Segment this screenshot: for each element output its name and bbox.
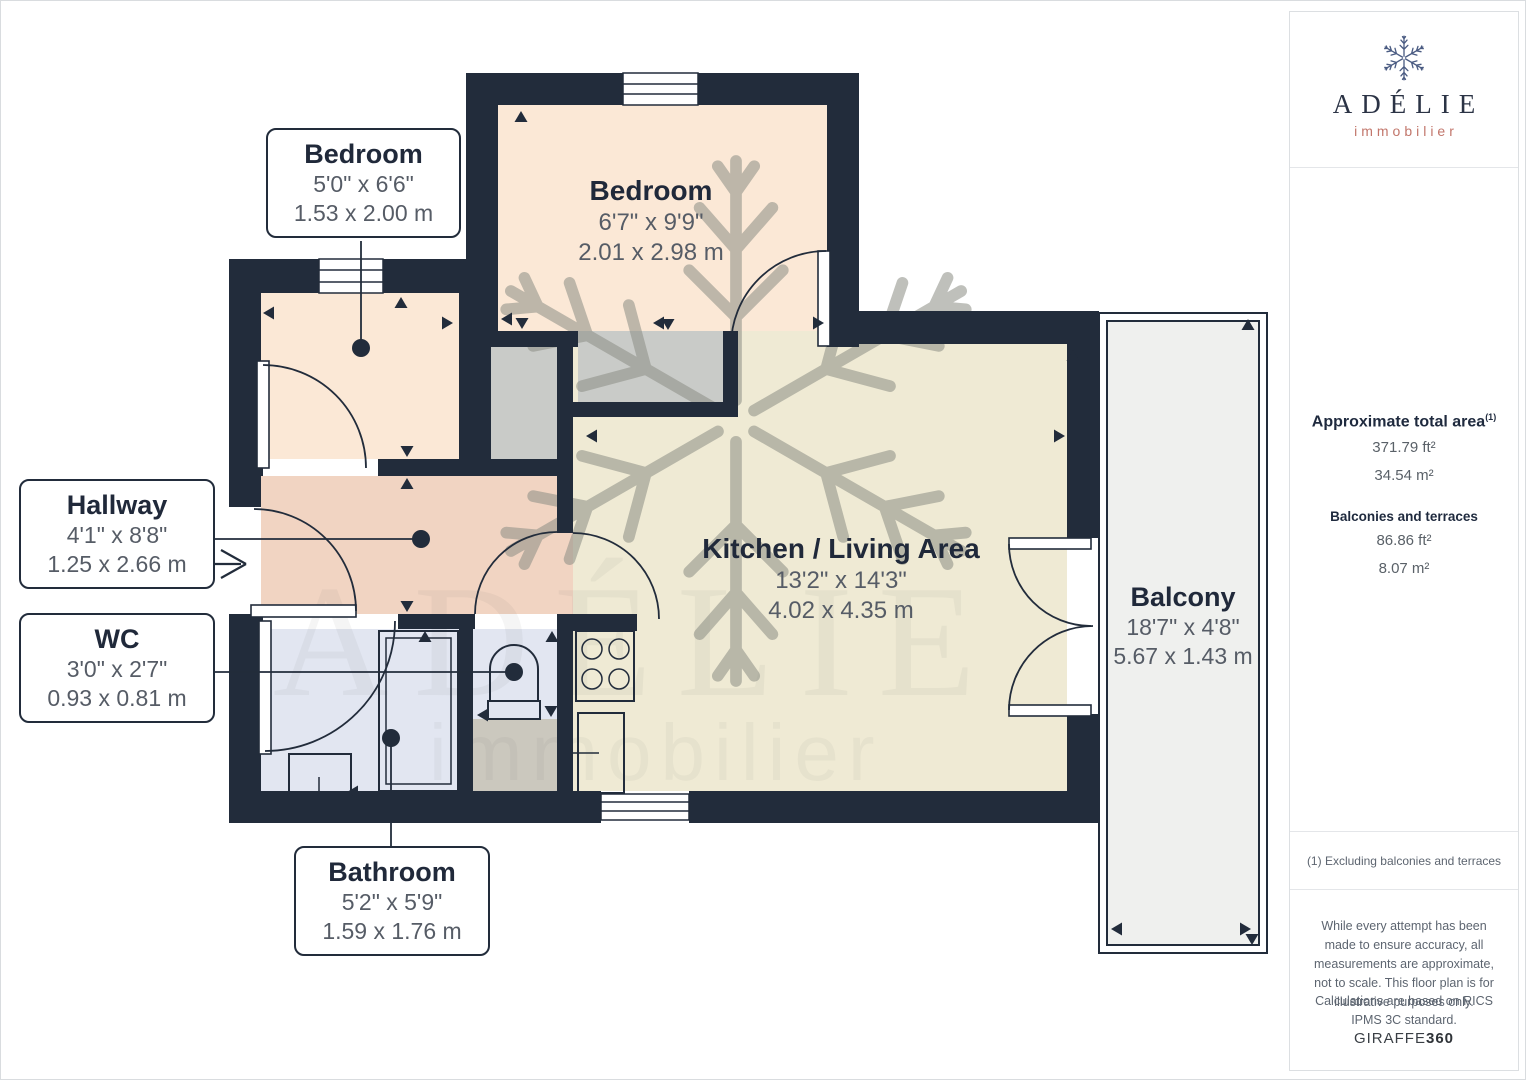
room-name: Bedroom	[481, 173, 821, 208]
room-name: WC	[27, 623, 207, 655]
room-name: Balcony	[1095, 581, 1271, 613]
closet-shaft	[491, 347, 557, 459]
bathroom-floor	[261, 629, 459, 791]
disclaimer-standard: Calculations are based on RICS IPMS 3C s…	[1304, 992, 1504, 1030]
room-size-imperial: 4'1" x 8'8"	[27, 521, 207, 550]
floorplan-page: ADÉLIE immobilier	[0, 0, 1526, 1080]
info-sidebar: ADÉLIE immobilier Approximate total area…	[1289, 11, 1519, 1071]
brand-subtitle: immobilier	[1290, 123, 1518, 139]
balcony-area-m: 8.07 m²	[1290, 558, 1518, 580]
room-label-bedroom-large: Bedroom 6'7" x 9'9" 2.01 x 2.98 m	[481, 173, 821, 268]
total-area-ft: 371.79 ft²	[1290, 437, 1518, 459]
balcony-area-ft: 86.86 ft²	[1290, 530, 1518, 552]
room-size-imperial: 18'7" x 4'8"	[1095, 613, 1271, 642]
room-size-imperial: 13'2" x 14'3"	[641, 566, 1041, 596]
room-size-imperial: 6'7" x 9'9"	[481, 208, 821, 238]
room-size-metric: 1.25 x 2.66 m	[27, 550, 207, 579]
giraffe360-logo: GIRAFFE360	[1290, 1030, 1518, 1047]
room-name: Hallway	[27, 489, 207, 521]
room-name: Bedroom	[274, 138, 453, 170]
brand-header: ADÉLIE immobilier	[1290, 12, 1518, 168]
brand-snowflake-icon	[1380, 34, 1428, 82]
hallway-floor	[261, 476, 573, 614]
room-size-metric: 1.59 x 1.76 m	[302, 917, 482, 946]
balconies-heading: Balconies and terraces	[1290, 509, 1518, 524]
wc-counter-area	[473, 719, 557, 791]
room-size-metric: 4.02 x 4.35 m	[641, 596, 1041, 626]
room-name: Kitchen / Living Area	[641, 531, 1041, 566]
room-size-metric: 5.67 x 1.43 m	[1095, 642, 1271, 671]
total-area-m: 34.54 m²	[1290, 465, 1518, 487]
wc-floor	[473, 629, 557, 719]
footnote-text: (1) Excluding balconies and terraces	[1307, 854, 1501, 868]
bedroom-doorway-threshold	[738, 331, 827, 347]
room-size-imperial: 3'0" x 2'7"	[27, 655, 207, 684]
room-label-box-bathroom: Bathroom 5'2" x 5'9" 1.59 x 1.76 m	[294, 846, 490, 956]
area-summary: Approximate total area(1) 371.79 ft² 34.…	[1290, 412, 1518, 580]
room-size-imperial: 5'2" x 5'9"	[302, 888, 482, 917]
room-size-metric: 1.53 x 2.00 m	[274, 199, 453, 228]
brand-name: ADÉLIE	[1290, 89, 1518, 120]
room-label-box-wc: WC 3'0" x 2'7" 0.93 x 0.81 m	[19, 613, 215, 723]
room-label-box-bedroom-small: Bedroom 5'0" x 6'6" 1.53 x 2.00 m	[266, 128, 461, 238]
entrance-doorway-gap	[229, 507, 261, 614]
wardrobe-niche	[578, 331, 723, 402]
room-label-box-hallway: Hallway 4'1" x 8'8" 1.25 x 2.66 m	[19, 479, 215, 589]
total-area-heading: Approximate total area(1)	[1290, 412, 1518, 431]
room-label-balcony: Balcony 18'7" x 4'8" 5.67 x 1.43 m	[1095, 581, 1271, 671]
bedroom-small-floor	[261, 293, 459, 459]
footnote-section: (1) Excluding balconies and terraces	[1290, 831, 1518, 890]
room-size-metric: 2.01 x 2.98 m	[481, 238, 821, 268]
room-size-metric: 0.93 x 0.81 m	[27, 684, 207, 713]
room-label-kitchen-living: Kitchen / Living Area 13'2" x 14'3" 4.02…	[641, 531, 1041, 626]
room-size-imperial: 5'0" x 6'6"	[274, 170, 453, 199]
room-name: Bathroom	[302, 856, 482, 888]
